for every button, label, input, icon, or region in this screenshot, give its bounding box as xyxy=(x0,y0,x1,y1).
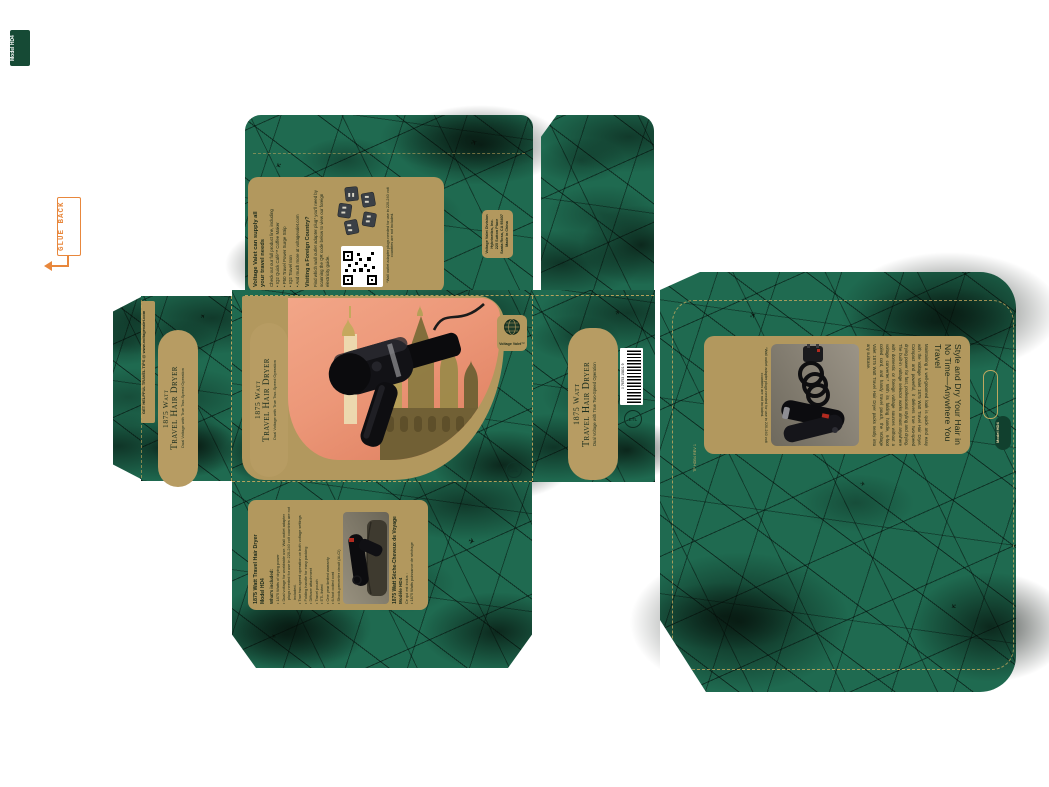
upc-barcode: 0 76753 15801 9 xyxy=(620,348,643,405)
visiting-heading: Visiting a Foreign Country? xyxy=(305,183,311,287)
fold-line xyxy=(532,296,533,481)
right-side-panel: ✈ 1875 Watt Travel Hair Dryer Dual Volta… xyxy=(532,290,655,482)
features-heading: 1875 Watt Travel Hair Dryer xyxy=(253,506,259,604)
title-watt: 1875 Watt xyxy=(253,331,262,469)
plane-icon: ✈ xyxy=(200,313,208,321)
travel-needs-panel: Voltage Valet can supply all your travel… xyxy=(248,177,444,293)
back-body: Maintaining a well-groomed look is quick… xyxy=(864,344,928,446)
title-pill-front: 1875 Watt Travel Hair Dryer Dual Voltage… xyxy=(250,323,288,477)
globe-icon xyxy=(503,318,521,336)
address-line: Santa Rosa, CA 95407 xyxy=(500,210,505,258)
product-line-item: • P50 Travel Power Surge Strip xyxy=(282,209,289,287)
brand-name: Voltage Valet™ xyxy=(497,342,527,346)
fold-line xyxy=(245,295,654,296)
address-line: Made in China xyxy=(505,210,510,258)
features-fr-list: • 1875 Watts puissance de séchage xyxy=(409,506,414,604)
plane-icon: ✈ xyxy=(274,160,283,169)
print-code: TP HDB4 REV 1 xyxy=(693,412,697,472)
model-pill-label: Model HD4 xyxy=(995,416,1011,450)
travel-needs-list: • IQ2 Quick Café™ Coffee Maker• P50 Trav… xyxy=(275,209,301,287)
feature-item: • Shock-preventer circuit (ALCI) xyxy=(336,506,341,604)
corner-cut xyxy=(660,272,700,290)
back-copy-panel: Style and Dry Your Hair in No Time—Anywh… xyxy=(704,336,970,454)
glue-back-arrow xyxy=(44,256,70,272)
pouch-photo xyxy=(343,512,389,604)
title-pill-left: 1875 Watt Travel Hair Dryer Dual Voltage… xyxy=(158,330,198,487)
front-panel: ✈ xyxy=(232,290,532,482)
dieline-canvas: Model HD4 GLUE BACK ✈ ✈ Voltage Valet ca… xyxy=(0,0,1049,787)
cathedral-illustration xyxy=(288,298,500,460)
fold-line xyxy=(232,481,532,482)
glue-back-label: GLUE BACK xyxy=(58,198,80,255)
fold-line xyxy=(231,296,232,481)
product-line-item: • And much more at voltagevalet.com xyxy=(295,209,302,287)
title-subtitle: Dual Voltage with True Two-Speed Operati… xyxy=(180,338,185,479)
features-extra-list: • 6-foot coiled cord• Shock-preventer ci… xyxy=(330,506,341,604)
qr-code-pattern xyxy=(343,251,377,285)
brand-logo-chip: Voltage Valet™ xyxy=(497,315,527,351)
visiting-body: Find which wall outlet adapter plug* you… xyxy=(313,189,331,287)
product-line-item: • IQ2 Travel Iron xyxy=(288,209,295,287)
left-glue-flap xyxy=(113,297,141,479)
features-panel: 1875 Watt Travel Hair Dryer Model HD4 Wh… xyxy=(248,500,428,610)
title-watt: 1875 Watt xyxy=(572,336,581,472)
product-line-item: • IQ2 Quick Café™ Coffee Maker xyxy=(275,209,282,287)
features-fr-model: Modèle HD4 xyxy=(398,506,403,604)
etl-mark-front: ETL xyxy=(506,462,522,478)
folded-dryer-pouch-image xyxy=(343,512,389,604)
adapter-plugs-image xyxy=(335,183,383,238)
title-pill-side: 1875 Watt Travel Hair Dryer Dual Voltage… xyxy=(568,328,618,480)
feature-item: • Dual voltage for worldwide use. Wall o… xyxy=(281,506,297,604)
travel-tips-label: GET HELPFUL TRAVEL TIPS @ www.voltageval… xyxy=(141,301,155,423)
travel-needs-intro: Check out our full product line, includi… xyxy=(269,183,274,287)
title-watt: 1875 Watt xyxy=(161,338,170,479)
fold-line xyxy=(141,300,142,478)
address-lines: Voltage Valet DivisionHybrinetics, Inc.2… xyxy=(482,210,510,258)
model-pill: Model HD4 xyxy=(995,416,1011,450)
front-hero-image xyxy=(288,298,500,460)
etl-label: ETL xyxy=(629,417,638,422)
title-subtitle: Dual Voltage with True Two-Speed Operati… xyxy=(592,336,597,472)
model-slug-label: Model HD4 xyxy=(10,30,30,66)
top-dust-flap xyxy=(541,115,654,296)
bottom-flap: ✈ ✈ 1875 Watt Travel Hair Dryer Model HD… xyxy=(232,482,532,668)
title-subtitle: Dual Voltage with True Two-Speed Operati… xyxy=(272,331,277,469)
qr-code xyxy=(341,246,383,287)
plane-icon: ✈ xyxy=(467,537,476,547)
etl-mark-side: ETL xyxy=(624,410,642,428)
features-list: • 1875 Watts of drying power• Dual volta… xyxy=(275,506,330,604)
features-included-label: What's included: xyxy=(269,506,274,604)
title-product: Travel Hair Dryer xyxy=(170,338,180,479)
title-product: Travel Hair Dryer xyxy=(581,336,592,472)
plane-icon: ✈ xyxy=(615,309,623,316)
feature-item-fr: • 1875 Watts puissance de séchage xyxy=(409,506,414,604)
upc-number: 0 76753 15801 9 xyxy=(621,348,625,405)
etl-label: ETL xyxy=(510,468,519,473)
travel-tips-strip: GET HELPFUL TRAVEL TIPS @ www.voltageval… xyxy=(141,301,155,423)
back-product-photo xyxy=(771,344,859,446)
travel-needs-heading: Voltage Valet can supply all your travel… xyxy=(253,207,267,287)
back-heading: Style and Dry Your Hair in No Time—Anywh… xyxy=(933,344,963,446)
model-slug-tab: Model HD4 xyxy=(10,30,30,66)
features-model: Model HD4 xyxy=(260,506,266,604)
glue-back-box: GLUE BACK xyxy=(57,197,81,256)
back-footnote: *Wall outlet adapter plugs needed for us… xyxy=(760,344,768,446)
adapter-footnote: *Wall outlet adapter plugs needed for us… xyxy=(386,183,394,287)
folded-dryer-cord-image xyxy=(771,344,859,446)
title-product: Travel Hair Dryer xyxy=(262,331,272,469)
hang-slot-cutout xyxy=(983,370,998,419)
back-section: ✈ ✈ ✈ Style and Dry Your Hair in No Time… xyxy=(660,272,1016,692)
address-box: Voltage Valet DivisionHybrinetics, Inc.2… xyxy=(482,210,513,258)
